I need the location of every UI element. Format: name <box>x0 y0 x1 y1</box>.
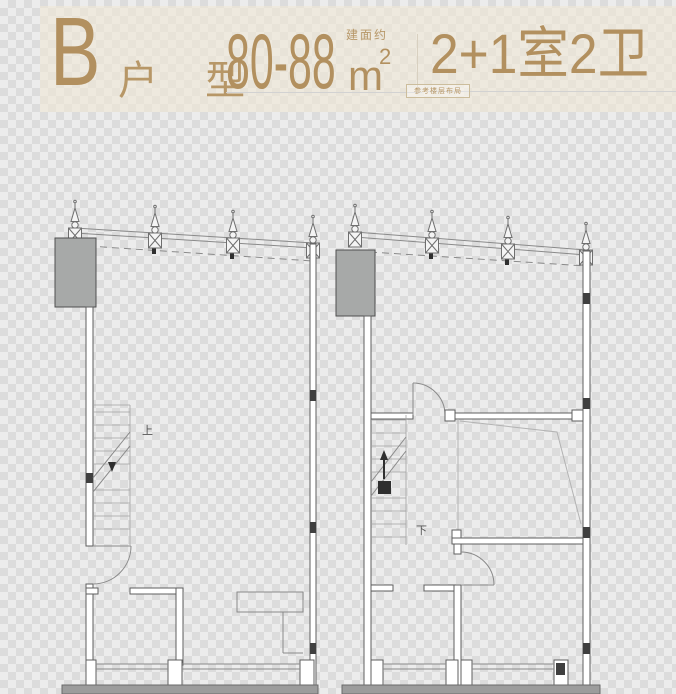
right-shaft-block <box>336 250 375 316</box>
floorplan-drawing: 上 <box>0 0 676 694</box>
stair-down-label: 下 <box>416 525 427 537</box>
stairs-right: 下 <box>371 415 427 545</box>
stair-up-label: 上 <box>142 424 153 437</box>
transparency-checkerboard-canvas: B 户 型 80-88 m 2 建面约 2+1室2卫 参考楼层布局 <box>0 0 676 694</box>
right-unit-bottom-rooms <box>371 544 568 685</box>
left-unit-plan: 上 <box>55 200 320 694</box>
curtain-wall-left <box>69 200 320 261</box>
left-unit-door <box>93 546 131 584</box>
right-unit-top-room <box>371 383 583 544</box>
right-unit-plan: 下 <box>336 204 600 694</box>
base-slab-left <box>62 685 318 694</box>
curtain-wall-right <box>349 204 593 266</box>
left-unit-walls <box>86 244 316 685</box>
left-shaft-block <box>55 238 96 307</box>
finial-icon <box>69 200 320 258</box>
base-slab-right <box>342 685 600 694</box>
right-unit-walls <box>364 251 590 685</box>
stairs-left: 上 <box>93 405 153 545</box>
left-unit-bottom-rooms <box>86 588 314 685</box>
